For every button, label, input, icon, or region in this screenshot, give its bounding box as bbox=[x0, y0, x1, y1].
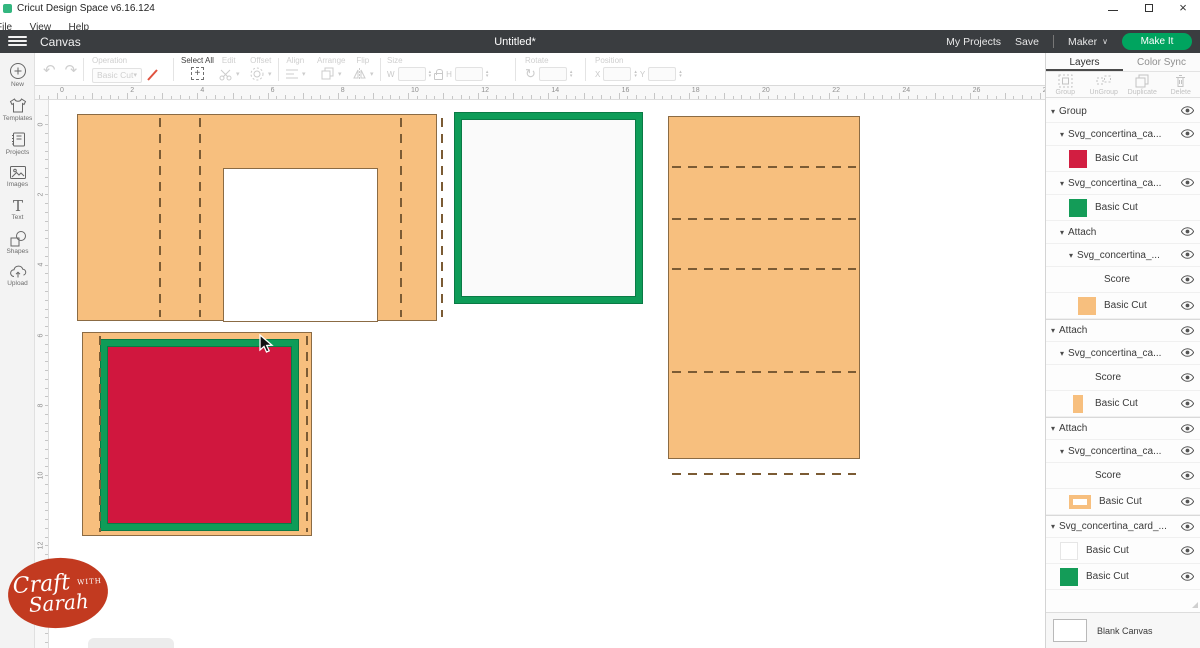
app-header: Canvas Untitled* My Projects Save Maker … bbox=[0, 30, 1200, 53]
lock-aspect-icon[interactable] bbox=[434, 73, 443, 80]
cricut-design-space-window: Cricut Design Space v6.16.124 File View … bbox=[0, 0, 1200, 648]
app-icon bbox=[3, 4, 12, 13]
eye-icon[interactable] bbox=[1181, 522, 1194, 531]
arrange-group: Arrange ▾ bbox=[317, 56, 345, 80]
score-line bbox=[672, 268, 856, 270]
red-insert-with-green-frame bbox=[101, 340, 298, 530]
position-y-stepper[interactable]: ▴▾ bbox=[679, 70, 682, 78]
height-input[interactable] bbox=[455, 67, 483, 81]
eye-icon[interactable] bbox=[1181, 326, 1194, 335]
my-projects-link[interactable]: My Projects bbox=[946, 36, 1001, 48]
eye-icon[interactable] bbox=[1181, 227, 1194, 236]
layer-color-swatch[interactable] bbox=[1073, 395, 1083, 413]
eye-icon[interactable] bbox=[1181, 373, 1194, 382]
make-it-button[interactable]: Make It bbox=[1122, 33, 1192, 50]
mouse-cursor-icon bbox=[258, 334, 276, 354]
caret-down-icon[interactable]: ▾ bbox=[1069, 251, 1073, 260]
sidebar-item-projects[interactable]: Projects bbox=[0, 131, 35, 156]
layer-label: Basic Cut bbox=[1086, 545, 1129, 556]
score-line bbox=[672, 371, 856, 373]
layer-label: Attach bbox=[1059, 423, 1087, 434]
eye-icon[interactable] bbox=[1181, 275, 1194, 284]
eye-icon[interactable] bbox=[1181, 424, 1194, 433]
sidebar-item-images[interactable]: Images bbox=[0, 165, 35, 188]
concertina-panel-with-aperture[interactable] bbox=[77, 114, 437, 321]
layer-label: Svg_concertina_ca... bbox=[1068, 446, 1161, 457]
sidebar-item-label: Upload bbox=[7, 280, 28, 287]
layer-label: Svg_concertina_ca... bbox=[1068, 129, 1161, 140]
layer-color-swatch[interactable] bbox=[1069, 495, 1091, 509]
layer-row[interactable]: ▾Group bbox=[1046, 100, 1200, 123]
layer-row[interactable]: Basic Cut bbox=[1046, 195, 1200, 221]
layer-label: Basic Cut bbox=[1086, 571, 1129, 582]
caret-down-icon[interactable]: ▾ bbox=[1051, 424, 1055, 433]
offset-icon bbox=[250, 67, 265, 81]
sidebar-item-templates[interactable]: Templates bbox=[0, 97, 35, 122]
layer-row[interactable]: Basic Cut bbox=[1046, 391, 1200, 417]
caret-down-icon[interactable]: ▾ bbox=[1051, 522, 1055, 531]
sidebar-item-new[interactable]: New bbox=[0, 62, 35, 88]
layer-row[interactable]: ▾Svg_concertina_ca... bbox=[1046, 342, 1200, 365]
ungroup-button[interactable]: UnGroup bbox=[1085, 74, 1124, 96]
layer-row[interactable]: Basic Cut bbox=[1046, 146, 1200, 172]
green-border-card-layer[interactable] bbox=[455, 113, 642, 303]
align-menu[interactable]: ▾ bbox=[285, 67, 306, 80]
edit-icon bbox=[218, 67, 233, 81]
sidebar-item-shapes[interactable]: Shapes bbox=[0, 230, 35, 255]
layer-label: Svg_concertina_ca... bbox=[1068, 348, 1161, 359]
layer-label: Basic Cut bbox=[1099, 496, 1142, 507]
tab-layers[interactable]: Layers bbox=[1046, 53, 1123, 71]
caret-down-icon[interactable]: ▾ bbox=[1060, 130, 1064, 139]
menubar: File View Help bbox=[0, 17, 1200, 30]
eye-icon[interactable] bbox=[1181, 572, 1194, 581]
layers-actions: GroupUnGroupDuplicateDelete bbox=[1046, 72, 1200, 98]
layer-row[interactable]: ▾Svg_concertina_... bbox=[1046, 244, 1200, 267]
rotate-stepper[interactable]: ▴▾ bbox=[570, 70, 573, 78]
eye-icon[interactable] bbox=[1181, 250, 1194, 259]
header-divider bbox=[1053, 35, 1054, 48]
height-stepper[interactable]: ▴▾ bbox=[486, 70, 489, 78]
score-line bbox=[672, 166, 856, 168]
sidebar-item-label: New bbox=[11, 81, 24, 88]
resize-corner-icon bbox=[1192, 602, 1198, 608]
score-line bbox=[306, 336, 308, 532]
score-line bbox=[159, 118, 161, 317]
layer-row[interactable]: ▾Svg_concertina_ca... bbox=[1046, 440, 1200, 463]
machine-select[interactable]: Maker ∨ bbox=[1068, 36, 1108, 48]
rotate-input[interactable] bbox=[539, 67, 567, 81]
arrange-menu[interactable]: ▾ bbox=[321, 67, 342, 80]
concertina-strip-panel[interactable] bbox=[668, 116, 860, 459]
score-line bbox=[400, 118, 402, 317]
layer-color-swatch[interactable] bbox=[1078, 271, 1096, 289]
delete-button[interactable]: Delete bbox=[1162, 74, 1200, 96]
edit-menu[interactable]: ▾ bbox=[218, 67, 240, 81]
close-icon[interactable] bbox=[1176, 2, 1190, 14]
layer-color-swatch[interactable] bbox=[1060, 568, 1078, 586]
group-button[interactable]: Group bbox=[1046, 74, 1085, 96]
zoom-control-pill[interactable] bbox=[88, 638, 174, 648]
rotate-icon: ↻ bbox=[525, 67, 536, 81]
blank-canvas-row[interactable]: Blank Canvas bbox=[1046, 612, 1200, 648]
layer-label: Score bbox=[1095, 470, 1121, 481]
layer-row[interactable]: Basic Cut bbox=[1046, 489, 1200, 515]
layer-row[interactable]: Score bbox=[1046, 463, 1200, 489]
score-line bbox=[672, 473, 856, 475]
select-all-icon[interactable]: + bbox=[191, 67, 204, 80]
layer-color-swatch[interactable] bbox=[1078, 297, 1096, 315]
sidebar-item-label: Text bbox=[12, 214, 24, 221]
layer-label: Basic Cut bbox=[1095, 153, 1138, 164]
blank-canvas-swatch bbox=[1053, 619, 1087, 642]
operation-select[interactable]: Basic Cut ▾ bbox=[92, 68, 142, 83]
score-line bbox=[199, 118, 201, 317]
operation-group: Operation Basic Cut ▾ bbox=[92, 56, 161, 83]
layer-label: Attach bbox=[1059, 325, 1087, 336]
sidebar-item-label: Projects bbox=[6, 149, 29, 156]
offset-menu[interactable]: ▾ bbox=[250, 67, 272, 81]
caret-down-icon[interactable]: ▾ bbox=[1051, 107, 1055, 116]
save-link[interactable]: Save bbox=[1015, 36, 1039, 48]
caret-down-icon[interactable]: ▾ bbox=[1060, 349, 1064, 358]
position-y-input[interactable] bbox=[648, 67, 676, 81]
layer-row[interactable]: ▾Svg_concertina_ca... bbox=[1046, 172, 1200, 195]
flip-group: Flip ▾ bbox=[352, 56, 374, 80]
sidebar-item-upload[interactable]: Upload bbox=[0, 264, 35, 287]
svg-text:T: T bbox=[13, 197, 23, 213]
layer-label: Svg_concertina_card_... bbox=[1059, 521, 1167, 532]
layers-panel: Layers Color Sync GroupUnGroupDuplicateD… bbox=[1045, 53, 1200, 648]
design-sidebar: NewTemplatesProjectsImagesTTextShapesUpl… bbox=[0, 53, 35, 648]
layer-label: Score bbox=[1104, 274, 1130, 285]
select-all-group: Select All + bbox=[181, 56, 214, 80]
layer-label: Basic Cut bbox=[1095, 202, 1138, 213]
layer-label: Basic Cut bbox=[1095, 398, 1138, 409]
width-input[interactable] bbox=[398, 67, 426, 81]
material-color-pen-icon[interactable] bbox=[145, 67, 161, 83]
caret-down-icon[interactable]: ▾ bbox=[1051, 326, 1055, 335]
layer-label: Group bbox=[1059, 106, 1087, 117]
horizontal-ruler: 0246810121416182022242628 bbox=[35, 86, 1045, 100]
eye-icon[interactable] bbox=[1181, 178, 1194, 187]
score-line bbox=[441, 118, 443, 317]
layer-label: Score bbox=[1095, 372, 1121, 383]
document-title[interactable]: Untitled* bbox=[470, 36, 560, 48]
align-icon bbox=[285, 67, 299, 80]
layer-row[interactable]: Score bbox=[1046, 267, 1200, 293]
redo-icon[interactable]: ↷ bbox=[65, 61, 78, 79]
eye-icon[interactable] bbox=[1181, 497, 1194, 506]
eye-icon[interactable] bbox=[1181, 301, 1194, 310]
score-line bbox=[672, 218, 856, 220]
offset-group: Offset ▾ bbox=[250, 56, 272, 81]
layer-row[interactable]: ▾Attach bbox=[1046, 221, 1200, 244]
layer-row[interactable]: ▾Svg_concertina_ca... bbox=[1046, 123, 1200, 146]
sidebar-item-label: Templates bbox=[3, 115, 33, 122]
app-title: Cricut Design Space v6.16.124 bbox=[17, 3, 155, 14]
layer-color-swatch[interactable] bbox=[1069, 150, 1087, 168]
duplicate-button[interactable]: Duplicate bbox=[1123, 74, 1162, 96]
undo-icon[interactable]: ↶ bbox=[43, 61, 56, 79]
layer-label: Basic Cut bbox=[1104, 300, 1147, 311]
edit-toolbar: ↶ ↷ Operation Basic Cut ▾ Select All + E… bbox=[35, 53, 1045, 86]
layers-list: ▾Group▾Svg_concertina_ca...Basic Cut▾Svg… bbox=[1046, 100, 1200, 612]
position-x-stepper[interactable]: ▴▾ bbox=[634, 70, 637, 78]
window-titlebar: Cricut Design Space v6.16.124 bbox=[0, 0, 1200, 17]
aperture-cutout bbox=[223, 168, 378, 322]
flip-menu[interactable]: ▾ bbox=[352, 67, 374, 80]
layer-color-swatch[interactable] bbox=[1060, 542, 1078, 560]
layer-label: Attach bbox=[1068, 227, 1096, 238]
maximize-icon[interactable] bbox=[1142, 2, 1156, 14]
position-x-input[interactable] bbox=[603, 67, 631, 81]
layer-row[interactable]: ▾Svg_concertina_card_... bbox=[1046, 515, 1200, 538]
caret-down-icon[interactable]: ▾ bbox=[1060, 228, 1064, 237]
minimize-icon[interactable] bbox=[1106, 2, 1120, 14]
layer-label: Svg_concertina_ca... bbox=[1068, 178, 1161, 189]
align-group: Align ▾ bbox=[285, 56, 306, 80]
eye-icon[interactable] bbox=[1181, 546, 1194, 555]
position-group: Position X ▴▾ Y ▴▾ bbox=[595, 56, 682, 81]
layer-label: Svg_concertina_... bbox=[1077, 250, 1160, 261]
chevron-down-icon: ▾ bbox=[133, 71, 137, 79]
rotate-group: Rotate ↻ ▴▾ bbox=[525, 56, 572, 81]
caret-down-icon[interactable]: ▾ bbox=[1060, 179, 1064, 188]
layer-color-swatch[interactable] bbox=[1069, 467, 1087, 485]
layer-color-swatch[interactable] bbox=[1069, 199, 1087, 217]
flip-icon bbox=[352, 67, 367, 80]
concertina-panel-with-red-insert[interactable] bbox=[82, 332, 312, 536]
size-group: Size W ▴▾ H ▴▾ bbox=[387, 56, 488, 81]
caret-down-icon[interactable]: ▾ bbox=[1060, 447, 1064, 456]
eye-icon[interactable] bbox=[1181, 106, 1194, 115]
layer-row[interactable]: Score bbox=[1046, 365, 1200, 391]
layer-row[interactable]: ▾Attach bbox=[1046, 417, 1200, 440]
layer-row[interactable]: Basic Cut bbox=[1046, 538, 1200, 564]
layer-row[interactable]: ▾Attach bbox=[1046, 319, 1200, 342]
canvas-menu-label[interactable]: Canvas bbox=[40, 35, 81, 49]
width-stepper[interactable]: ▴▾ bbox=[429, 70, 432, 78]
sidebar-item-label: Images bbox=[7, 181, 28, 188]
layer-row[interactable]: Basic Cut bbox=[1046, 293, 1200, 319]
eye-icon[interactable] bbox=[1181, 399, 1194, 408]
layer-row[interactable]: Basic Cut bbox=[1046, 564, 1200, 590]
eye-icon[interactable] bbox=[1181, 471, 1194, 480]
hamburger-menu-icon[interactable] bbox=[8, 36, 27, 48]
layer-color-swatch[interactable] bbox=[1069, 369, 1087, 387]
score-line bbox=[99, 336, 101, 532]
design-canvas[interactable]: 0246810121416182022242628 02468101214 bbox=[35, 86, 1045, 648]
edit-group: Edit ▾ bbox=[218, 56, 240, 81]
eye-icon[interactable] bbox=[1181, 446, 1194, 455]
eye-icon[interactable] bbox=[1181, 129, 1194, 138]
tab-color-sync[interactable]: Color Sync bbox=[1123, 53, 1200, 71]
sidebar-item-text[interactable]: TText bbox=[0, 197, 35, 221]
sidebar-item-label: Shapes bbox=[6, 248, 28, 255]
chevron-down-icon: ∨ bbox=[1102, 37, 1108, 46]
eye-icon[interactable] bbox=[1181, 348, 1194, 357]
arrange-icon bbox=[321, 67, 335, 80]
